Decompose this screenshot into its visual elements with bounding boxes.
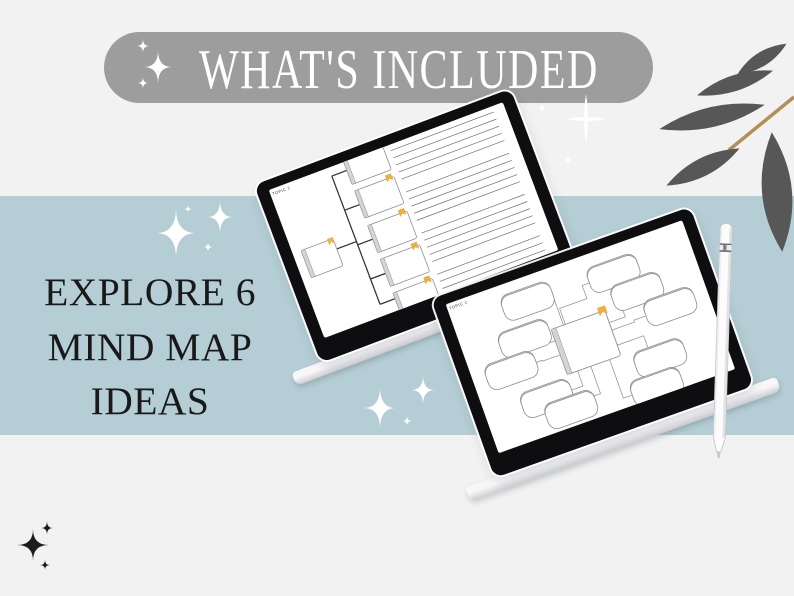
svg-text:TOPIC 1: TOPIC 1 xyxy=(272,185,292,196)
svg-text:TOPIC 2: TOPIC 2 xyxy=(448,300,468,311)
